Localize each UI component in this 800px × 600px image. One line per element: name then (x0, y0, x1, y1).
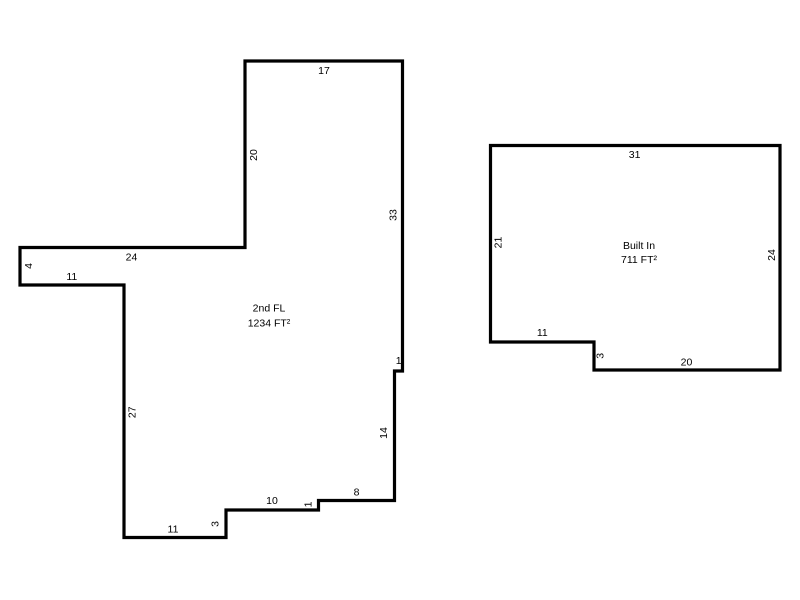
svg-text:31: 31 (629, 149, 641, 161)
svg-text:11: 11 (66, 271, 77, 283)
svg-text:11: 11 (168, 524, 179, 536)
svg-text:24: 24 (126, 252, 138, 264)
svg-text:3: 3 (595, 353, 607, 359)
svg-text:1: 1 (303, 501, 315, 507)
svg-text:21: 21 (493, 237, 505, 249)
svg-text:24: 24 (766, 249, 778, 261)
svg-text:711 FT²: 711 FT² (621, 254, 657, 266)
svg-text:33: 33 (388, 209, 400, 221)
svg-text:1234 FT²: 1234 FT² (248, 317, 291, 329)
svg-text:2nd FL: 2nd FL (253, 303, 286, 315)
svg-text:4: 4 (23, 263, 35, 269)
svg-text:20: 20 (681, 357, 693, 369)
svg-text:Built In: Built In (623, 240, 655, 252)
svg-text:10: 10 (266, 495, 278, 507)
svg-text:14: 14 (378, 427, 390, 439)
svg-text:17: 17 (318, 65, 330, 77)
svg-text:27: 27 (127, 406, 139, 418)
svg-text:11: 11 (537, 327, 548, 339)
svg-text:20: 20 (248, 149, 260, 161)
svg-text:3: 3 (210, 521, 222, 527)
svg-text:1: 1 (396, 355, 402, 367)
svg-text:8: 8 (354, 487, 360, 499)
